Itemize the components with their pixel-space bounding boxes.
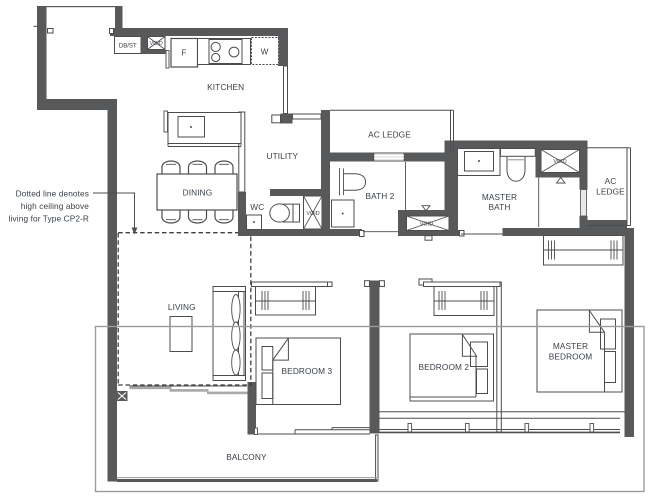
svg-text:high ceiling above: high ceiling above [21, 201, 90, 211]
svg-text:DB/ST: DB/ST [119, 43, 137, 50]
svg-text:UTILITY: UTILITY [267, 151, 299, 161]
svg-text:AC LEDGE: AC LEDGE [368, 130, 411, 140]
svg-text:F: F [182, 49, 187, 58]
svg-text:VOID: VOID [553, 159, 566, 165]
svg-text:BALCONY: BALCONY [226, 452, 267, 462]
svg-text:MASTER: MASTER [553, 341, 588, 351]
svg-text:DINING: DINING [183, 187, 213, 197]
svg-text:BEDROOM 2: BEDROOM 2 [418, 362, 469, 372]
svg-text:VOID: VOID [306, 211, 319, 217]
svg-text:WC: WC [250, 202, 264, 212]
svg-text:LIVING: LIVING [168, 302, 196, 312]
svg-text:VOID: VOID [420, 222, 433, 228]
svg-text:MASTER: MASTER [482, 192, 517, 202]
svg-text:W: W [261, 48, 269, 57]
svg-text:VOID: VOID [150, 41, 163, 47]
svg-text:BEDROOM 3: BEDROOM 3 [282, 366, 333, 376]
svg-text:LEDGE: LEDGE [596, 187, 625, 197]
svg-text:living for Type CP2-R: living for Type CP2-R [9, 214, 89, 224]
svg-text:Dotted line denotes: Dotted line denotes [16, 189, 89, 199]
svg-text:BATH 2: BATH 2 [365, 191, 394, 201]
svg-text:AC: AC [605, 176, 617, 186]
svg-text:BATH: BATH [489, 202, 511, 212]
svg-text:KITCHEN: KITCHEN [207, 82, 244, 92]
svg-text:BEDROOM: BEDROOM [549, 352, 593, 362]
